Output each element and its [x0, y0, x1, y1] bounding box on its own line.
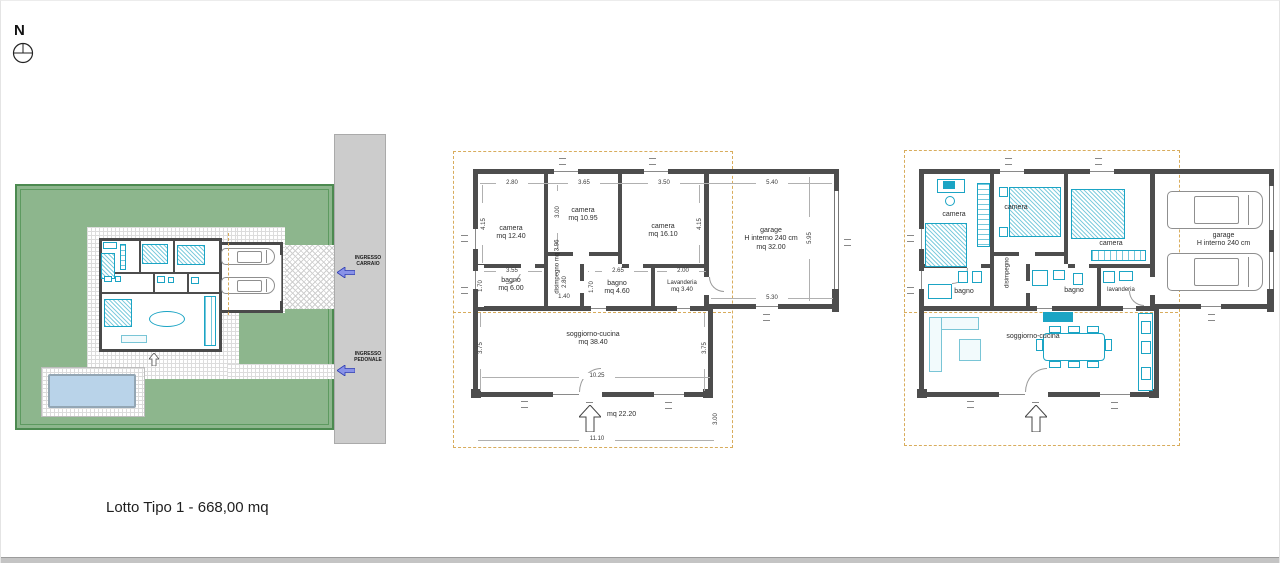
chair [1049, 326, 1061, 333]
wall-segment [990, 174, 994, 264]
site-garage-door [279, 255, 282, 301]
sofa [121, 335, 147, 343]
chair [1049, 361, 1061, 368]
car-cabin [1194, 196, 1239, 225]
wall-pilaster [917, 389, 927, 398]
wall-segment [1064, 174, 1068, 264]
entrance-opening [1025, 392, 1048, 397]
room-label-lavanderia: Lavanderia mq 3.40 [653, 280, 711, 294]
road-strip [334, 134, 386, 444]
window [919, 229, 924, 249]
car-cabin [237, 251, 262, 263]
bed [177, 245, 205, 265]
bath-fixture [157, 276, 165, 283]
window [654, 392, 684, 397]
wall-segment [1150, 174, 1155, 269]
window-marker [1095, 158, 1102, 165]
compass-icon [11, 41, 35, 65]
dim-label: 11.10 [579, 436, 615, 442]
wall-segment [153, 274, 155, 294]
arrow-left-icon [337, 267, 355, 278]
wall-segment [1269, 230, 1274, 252]
window [919, 271, 924, 289]
dim-label: 3.55 [496, 268, 528, 274]
lot-line-dashed [904, 312, 1178, 313]
chair [1105, 339, 1112, 351]
dim-label: 2.65 [602, 268, 634, 274]
entrance-opening [579, 392, 602, 397]
room-label-bagno2: bagno mq 4.60 [595, 280, 639, 297]
window-marker [1208, 314, 1215, 321]
room-label-portico: mq 22.20 [607, 411, 657, 419]
room-label-camera2: camera [996, 204, 1036, 212]
room-label-disimpegno: disimpegno [1004, 247, 1011, 299]
dim-label: 3.50 [648, 180, 680, 186]
room-label-camera2: camera mq 10.95 [552, 207, 614, 224]
room-label-camera3: camera [1091, 240, 1131, 248]
wall-segment [1035, 252, 1064, 256]
window [553, 392, 579, 397]
window [1100, 392, 1130, 397]
room-label-bagno1: bagno mq 6.00 [489, 277, 533, 294]
car [221, 248, 275, 265]
toilet [1073, 273, 1083, 285]
window-marker [967, 401, 974, 408]
nightstand [999, 227, 1008, 237]
dim-label: 1.70 [478, 265, 484, 307]
bath-fixture [115, 276, 121, 282]
window-marker [1111, 402, 1118, 409]
window [644, 169, 668, 174]
room-label-lavanderia: lavanderia [1097, 287, 1145, 294]
closet [120, 244, 126, 270]
bed [104, 299, 132, 327]
wall-segment [139, 241, 141, 274]
window-marker [763, 314, 770, 321]
fridge [1141, 367, 1151, 380]
north-label: N [14, 22, 25, 39]
wall-segment [589, 252, 618, 256]
lot-line-dashed [453, 312, 731, 313]
dim-label: 3.75 [702, 327, 708, 369]
window [473, 229, 478, 249]
window-marker [649, 158, 656, 165]
garage-door [1269, 252, 1274, 289]
toilet [958, 271, 968, 283]
bed [925, 223, 967, 267]
wall-segment [1068, 264, 1075, 268]
room-label-disimpegno: disimpegno mq 3.96 [554, 238, 561, 296]
computer [943, 181, 955, 189]
door-opening [1037, 306, 1052, 311]
window [756, 304, 778, 309]
desk [103, 242, 117, 249]
window-marker [461, 287, 468, 294]
wall-segment [1026, 264, 1030, 281]
wall-segment [580, 264, 584, 281]
dim-label: 5.40 [756, 180, 788, 186]
chair [1087, 326, 1099, 333]
wall-segment [1150, 269, 1155, 277]
wall-segment [1154, 306, 1159, 397]
window-marker [1005, 158, 1012, 165]
dining-table [149, 311, 185, 327]
dim-label: 4.15 [697, 203, 703, 245]
wall-segment [102, 272, 219, 274]
desk-chair [945, 196, 955, 206]
dim-label: 3.75 [478, 327, 484, 369]
window [999, 392, 1025, 397]
wall-segment [173, 241, 175, 274]
pool [48, 374, 136, 408]
shower [1032, 270, 1048, 286]
sink [1053, 270, 1065, 280]
room-label-soggiorno: soggiorno-cucina mq 38.40 [543, 331, 643, 348]
wall-segment [1026, 293, 1030, 306]
room-label-bagno2: bagno [1057, 287, 1091, 295]
drawing-sheet: N INGRESSO CARRAIO INGRESSO P [0, 0, 1280, 563]
bath-fixture [191, 277, 199, 284]
wall-segment [1269, 169, 1274, 186]
window-marker [559, 158, 566, 165]
laundry-sink [1119, 271, 1133, 281]
wall-segment [102, 292, 219, 294]
room-label-camera3: camera mq 16.10 [631, 223, 695, 240]
pedestrian-path [227, 364, 334, 379]
car [1167, 191, 1263, 229]
wall-segment [544, 264, 548, 306]
room-label-camera1: camera mq 12.40 [481, 225, 541, 242]
sheet-caption: Lotto Tipo 1 - 668,00 mq [106, 499, 269, 516]
room-label-bagno1: bagno [947, 288, 981, 296]
window [1201, 304, 1221, 309]
bottom-bar [1, 557, 1280, 563]
kitchen-peninsula [1043, 312, 1073, 322]
room-label-camera1: camera [934, 211, 974, 219]
bed [1071, 189, 1125, 239]
window-marker [461, 235, 468, 242]
cooktop [1141, 341, 1151, 354]
wall-segment [834, 169, 839, 191]
chair [1068, 361, 1080, 368]
door-opening [1123, 306, 1136, 311]
dim-label: 5.30 [756, 295, 788, 301]
wall-segment [704, 174, 709, 269]
nightstand [999, 187, 1008, 197]
wall-segment [187, 274, 189, 294]
window-marker [907, 235, 914, 242]
garage-door [1269, 186, 1274, 230]
entrance-arrow-icon [579, 405, 601, 432]
ingresso-carraio-label: INGRESSO CARRAIO [347, 255, 389, 268]
garage-door [834, 191, 839, 289]
bath-fixture [104, 276, 112, 282]
window-marker [907, 287, 914, 294]
dim-label: 3.00 [713, 398, 719, 440]
room-label-garage: garage H interno 240 cm mq 32.00 [721, 227, 821, 252]
window-marker [521, 401, 528, 408]
door-opening [591, 306, 606, 311]
car [221, 277, 275, 294]
dim-label: 10.25 [579, 373, 615, 379]
chair [1087, 361, 1099, 368]
wall-segment [708, 306, 713, 397]
bidet [972, 271, 982, 283]
entrance-arrow-icon [1025, 405, 1047, 432]
washing-machine [1103, 271, 1115, 283]
kitchen-sink [1141, 321, 1151, 334]
closet [1091, 250, 1146, 261]
room-label-soggiorno: soggiorno-cucina [998, 333, 1068, 341]
arrow-left-icon [337, 365, 355, 376]
car-cabin [237, 280, 262, 292]
wall-segment [618, 174, 622, 264]
wall-segment [544, 174, 548, 264]
sofa [929, 317, 942, 372]
driveway-hatch [285, 245, 334, 309]
window-marker [665, 402, 672, 409]
kitchen-counter [204, 296, 216, 346]
car-cabin [1194, 258, 1239, 287]
armchair [959, 339, 981, 361]
dim-label: 3.65 [568, 180, 600, 186]
dim-label: 2.80 [496, 180, 528, 186]
car [1167, 253, 1263, 291]
door-opening [677, 306, 690, 311]
room-label-garage: garage H interno 240 cm [1181, 232, 1266, 249]
wall-segment [580, 293, 584, 306]
window-marker [844, 239, 851, 246]
window [1090, 169, 1114, 174]
bath-fixture [168, 277, 174, 283]
lot-line-dashed [228, 233, 229, 315]
window [1000, 169, 1024, 174]
dim-label: 2.00 [667, 268, 699, 274]
bed [142, 244, 168, 264]
entrance-arrow-icon [149, 353, 159, 366]
ingresso-pedonale-label: INGRESSO PEDONALE [347, 351, 389, 364]
closet [977, 183, 990, 247]
wall-segment [990, 264, 994, 306]
window [554, 169, 578, 174]
chair [1068, 326, 1080, 333]
